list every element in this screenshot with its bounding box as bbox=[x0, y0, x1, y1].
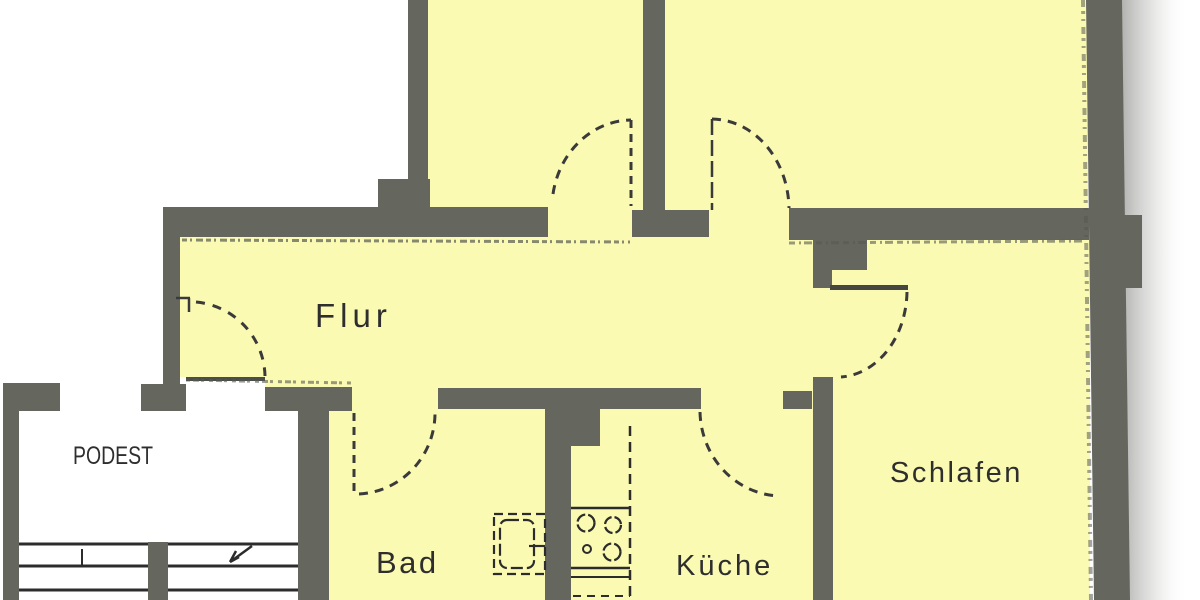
svg-text:PODEST: PODEST bbox=[73, 442, 153, 470]
svg-text:Flur: Flur bbox=[315, 297, 392, 334]
svg-text:Schlafen: Schlafen bbox=[890, 457, 1023, 489]
svg-text:Bad: Bad bbox=[376, 545, 439, 580]
svg-text:Küche: Küche bbox=[676, 550, 773, 582]
